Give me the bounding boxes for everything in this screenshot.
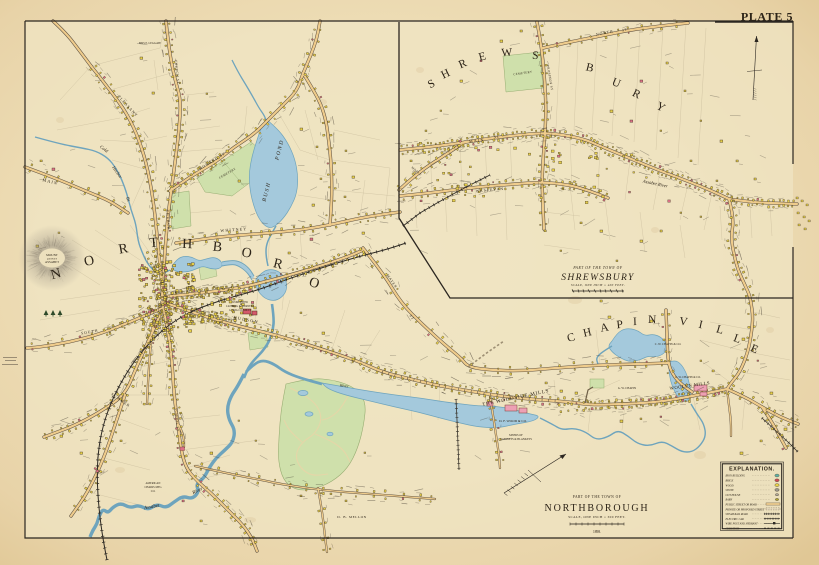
svg-text:WORCESTER: WORCESTER: [232, 301, 248, 304]
svg-text:WIRE POST AND HYDRANT: WIRE POST AND HYDRANT: [726, 523, 759, 526]
svg-text:BRICK: BRICK: [726, 480, 734, 483]
svg-text:PART OF THE TOWN OF: PART OF THE TOWN OF: [572, 266, 623, 270]
svg-text:CEMETERY: CEMETERY: [726, 528, 740, 531]
svg-text:I: I: [633, 316, 637, 328]
svg-text:S: S: [532, 50, 540, 63]
svg-text:N: N: [648, 314, 657, 326]
svg-text:G. W. CHAPIN & CO.: G. W. CHAPIN & CO.: [675, 376, 701, 379]
svg-text:MOUNT: MOUNT: [46, 253, 58, 257]
svg-text:D. F. WOOD & CO.: D. F. WOOD & CO.: [499, 419, 527, 423]
svg-text:D. B. MELLON: D. B. MELLON: [337, 515, 366, 519]
svg-text:PRIVATE OR PROPOSED STREET: PRIVATE OR PROPOSED STREET: [725, 508, 765, 511]
svg-text:ELECTRIC CAR: ELECTRIC CAR: [725, 518, 745, 521]
svg-text:SHREWSBURY: SHREWSBURY: [561, 273, 635, 283]
svg-text:NORTHBOROUGH: NORTHBOROUGH: [545, 503, 650, 514]
svg-text:PUBLIC STREET OR ROAD: PUBLIC STREET OR ROAD: [725, 504, 757, 507]
svg-text:MRS E. LEGGATE: MRS E. LEGGATE: [139, 42, 162, 45]
svg-text:OUT HOUSE: OUT HOUSE: [726, 494, 741, 497]
svg-text:CATERPIG & WORSTED: CATERPIG & WORSTED: [226, 305, 254, 308]
svg-text:BARN: BARN: [726, 499, 733, 502]
svg-text:G. SMG CO. MILLS: G. SMG CO. MILLS: [229, 309, 252, 312]
svg-text:AMERICAN: AMERICAN: [146, 482, 161, 485]
svg-text:IRON BUILDING: IRON BUILDING: [725, 475, 746, 478]
svg-text:C. W. CHAPIN & CO.: C. W. CHAPIN & CO.: [655, 342, 682, 346]
svg-text:G. W. CHAPIN: G. W. CHAPIN: [618, 386, 637, 390]
svg-text:T: T: [149, 236, 159, 252]
svg-text:ASSABET: ASSABET: [45, 260, 59, 264]
svg-text:W: W: [501, 47, 513, 60]
svg-text:PLATE 5: PLATE 5: [741, 10, 793, 24]
svg-text:ST: ST: [494, 135, 500, 140]
svg-text:B: B: [212, 240, 223, 256]
svg-text:STEAM RAIL ROAD: STEAM RAIL ROAD: [726, 513, 749, 516]
svg-text:MNFRS OF: MNFRS OF: [509, 434, 523, 437]
svg-text:PART OF THE TOWN OF: PART OF THE TOWN OF: [573, 495, 621, 499]
svg-text:STONE: STONE: [726, 489, 735, 492]
svg-text:1898.: 1898.: [593, 530, 601, 534]
svg-text:EXPLANATION.: EXPLANATION.: [729, 467, 775, 473]
svg-text:P: P: [616, 319, 624, 332]
svg-text:CO.: CO.: [151, 490, 156, 493]
svg-text:CHAIRS MFG: CHAIRS MFG: [144, 486, 161, 489]
svg-text:WOOD: WOOD: [726, 484, 734, 487]
